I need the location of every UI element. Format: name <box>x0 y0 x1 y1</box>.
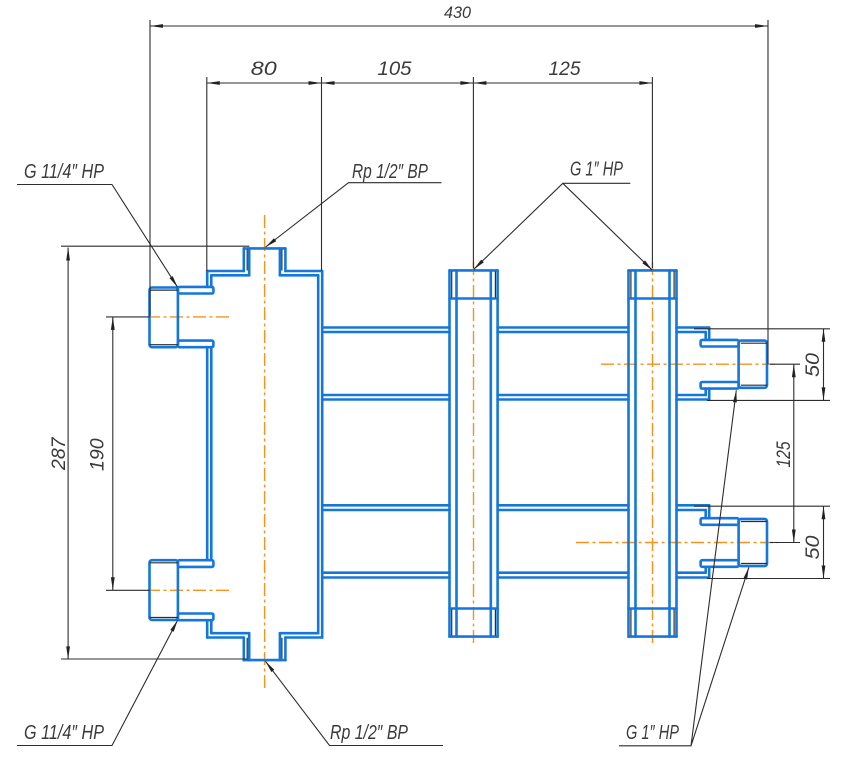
svg-text:105: 105 <box>378 58 412 80</box>
svg-text:287: 287 <box>48 436 70 471</box>
svg-text:125: 125 <box>549 58 581 80</box>
svg-text:Rp 1/2″ BP: Rp 1/2″ BP <box>330 722 409 744</box>
svg-text:G 11/4″ HP: G 11/4″ HP <box>24 722 105 744</box>
svg-text:190: 190 <box>87 438 109 471</box>
svg-text:430: 430 <box>444 4 472 22</box>
svg-text:G 1″ HP: G 1″ HP <box>626 722 679 744</box>
svg-text:50: 50 <box>802 353 824 377</box>
svg-text:G 11/4″ HP: G 11/4″ HP <box>24 161 105 183</box>
svg-text:50: 50 <box>802 535 824 559</box>
svg-text:80: 80 <box>251 58 277 80</box>
svg-text:125: 125 <box>773 441 795 467</box>
svg-text:Rp 1/2″ BP: Rp 1/2″ BP <box>352 161 429 183</box>
svg-text:G 1″ HP: G 1″ HP <box>570 159 623 181</box>
